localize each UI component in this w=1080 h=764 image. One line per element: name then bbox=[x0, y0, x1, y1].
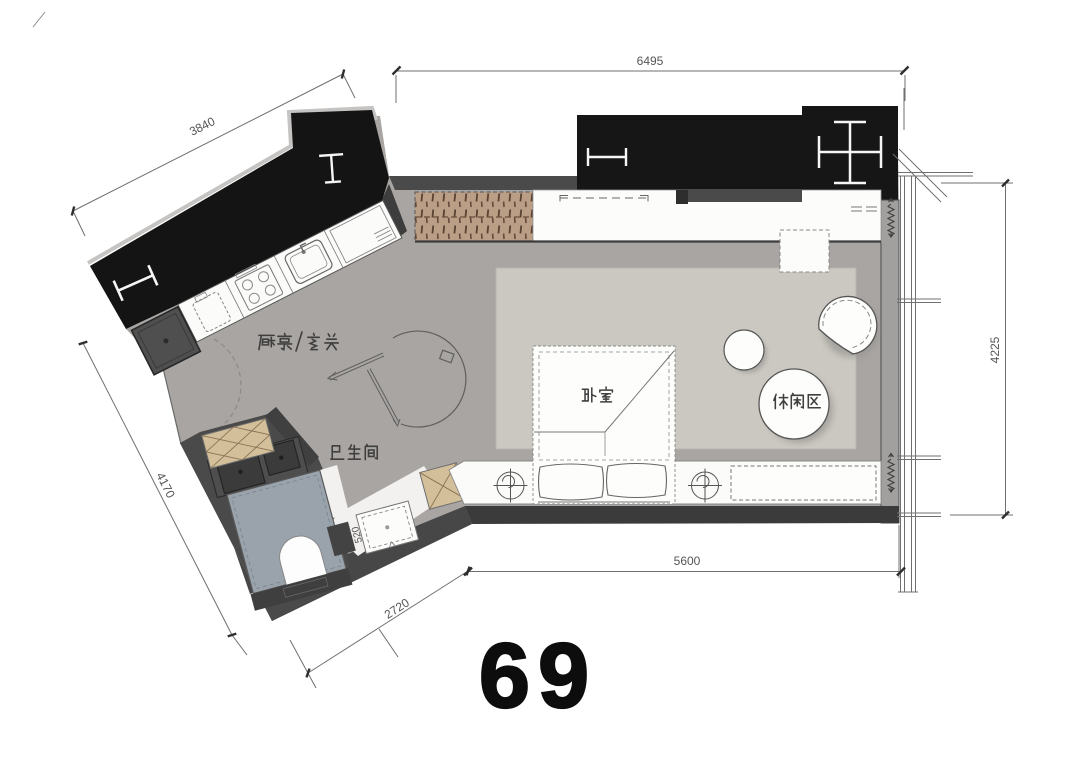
svg-text:3840: 3840 bbox=[187, 114, 217, 139]
svg-text:6495: 6495 bbox=[637, 54, 664, 68]
svg-text:69: 69 bbox=[479, 625, 597, 727]
svg-text:4225: 4225 bbox=[988, 336, 1002, 363]
svg-text:4170: 4170 bbox=[153, 470, 178, 500]
svg-text:5600: 5600 bbox=[674, 554, 701, 568]
svg-text:2720: 2720 bbox=[382, 595, 412, 621]
